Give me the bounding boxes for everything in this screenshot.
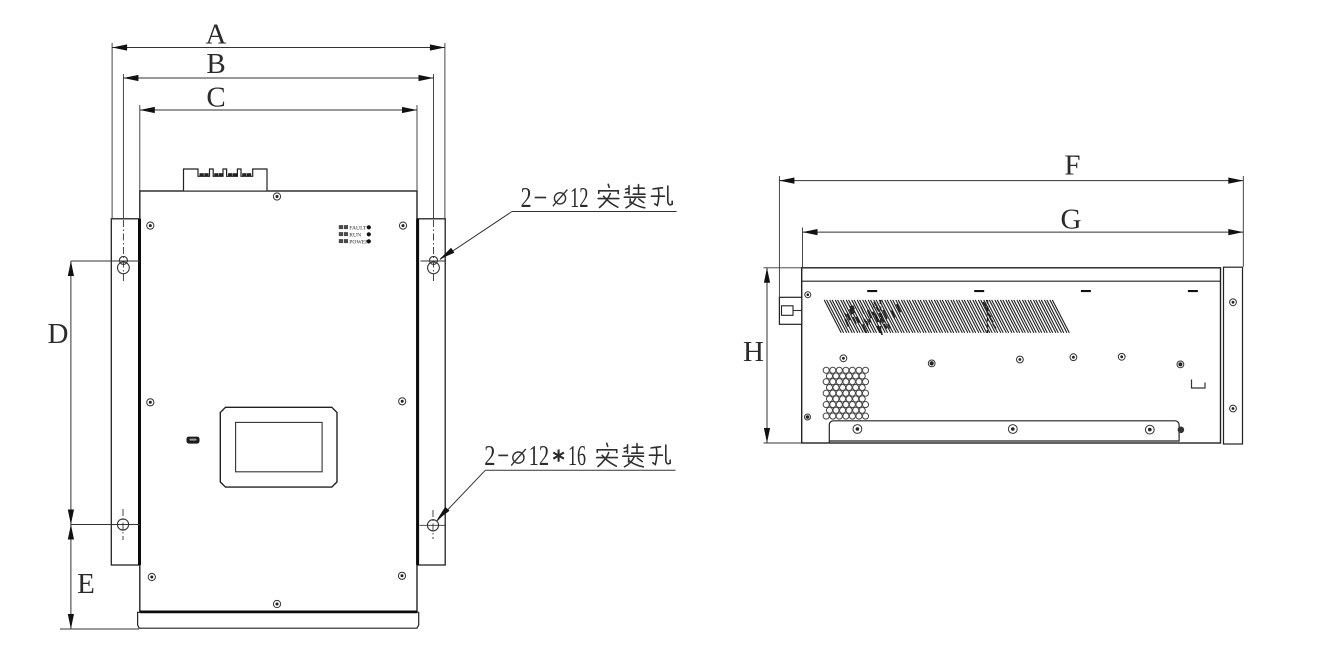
svg-text:2: 2 <box>521 183 532 214</box>
svg-text:B: B <box>206 48 225 80</box>
svg-text:G: G <box>1061 204 1082 236</box>
svg-text:A: A <box>206 19 227 51</box>
svg-text:2: 2 <box>484 441 495 472</box>
svg-text:D: D <box>48 318 69 350</box>
svg-text:FAULT: FAULT <box>349 226 367 232</box>
svg-text:F: F <box>1064 150 1080 182</box>
svg-text:POWER: POWER <box>349 240 369 246</box>
svg-text:C: C <box>206 82 225 114</box>
svg-text:RUN: RUN <box>349 233 361 239</box>
svg-text:12: 12 <box>529 441 550 472</box>
svg-text:16: 16 <box>568 441 586 472</box>
svg-text:E: E <box>77 568 95 600</box>
svg-text:12: 12 <box>570 183 589 214</box>
svg-text:H: H <box>743 336 764 368</box>
